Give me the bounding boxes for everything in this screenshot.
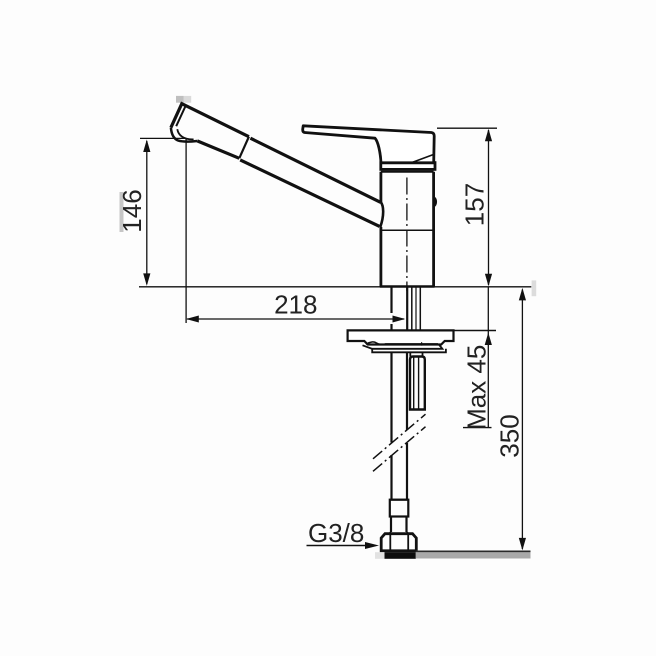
- svg-text:G3/8: G3/8: [308, 518, 364, 548]
- svg-text:157: 157: [460, 183, 490, 226]
- svg-text:146: 146: [117, 189, 147, 232]
- svg-text:Max 45: Max 45: [462, 345, 492, 430]
- svg-text:218: 218: [274, 289, 317, 319]
- svg-text:350: 350: [495, 414, 525, 457]
